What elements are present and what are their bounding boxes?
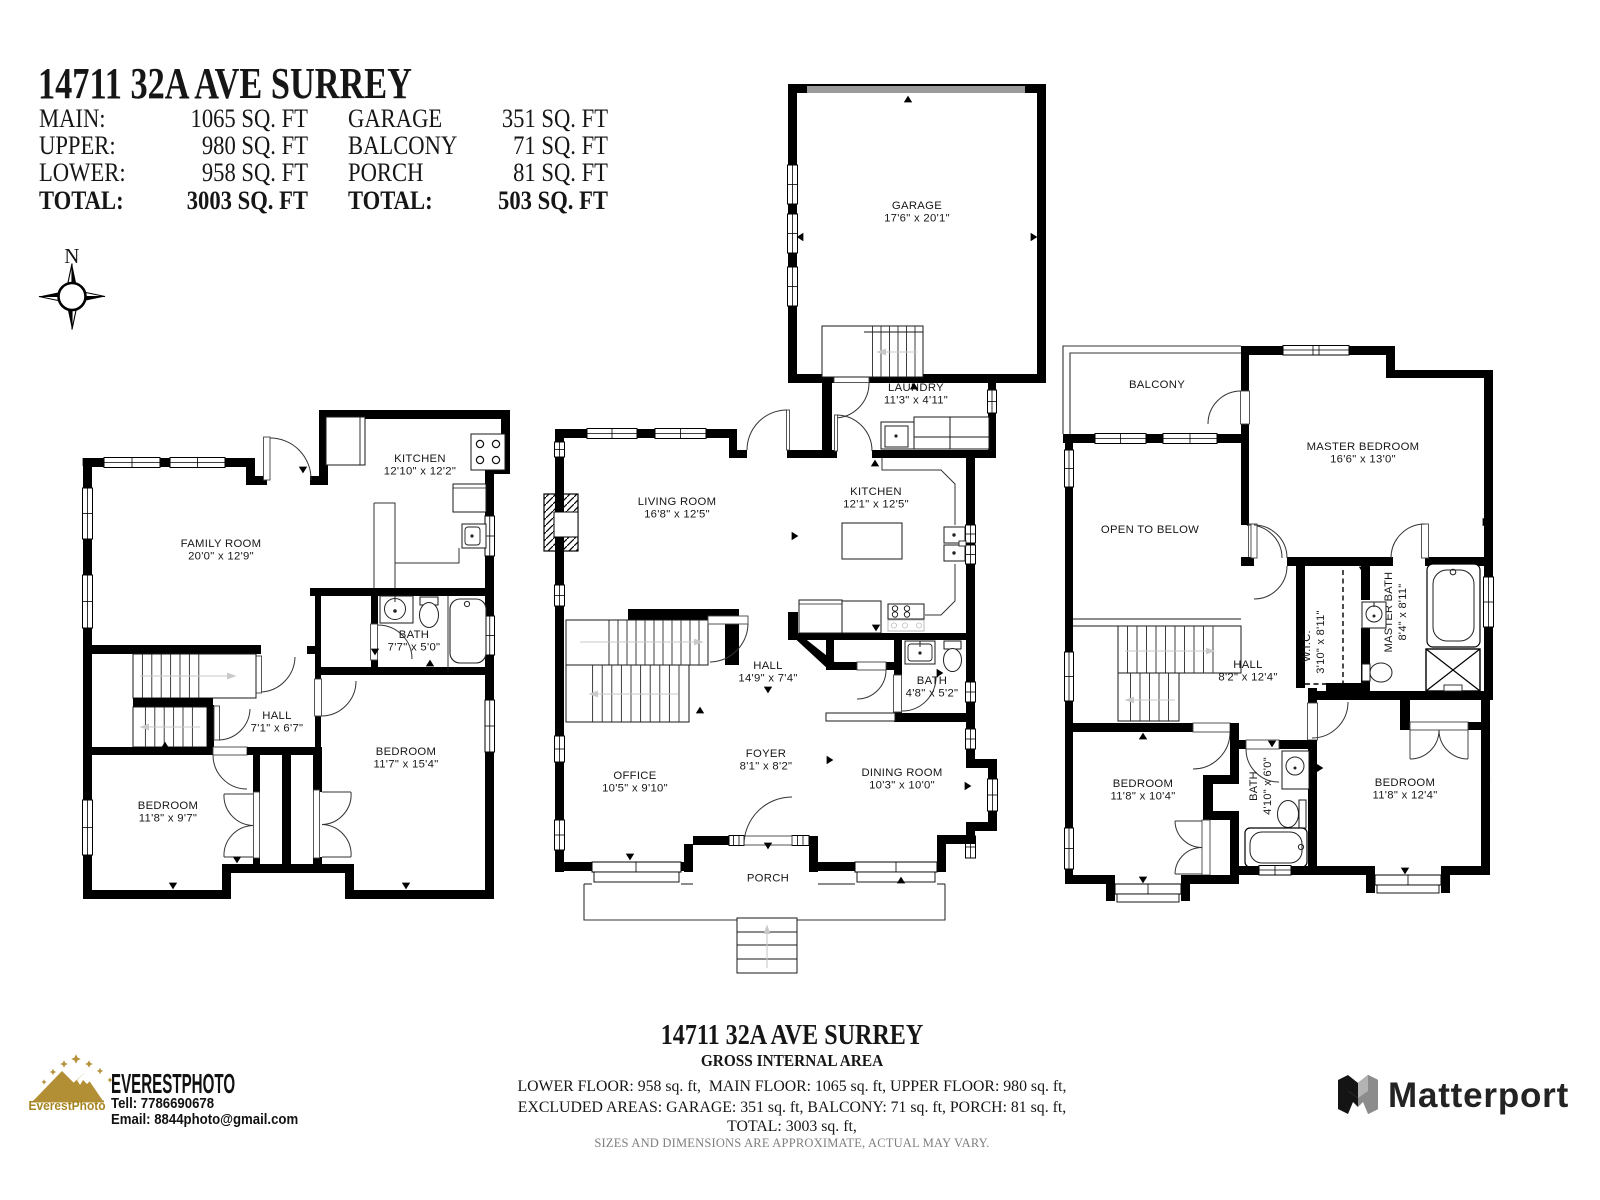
svg-text:8'4" x 8'11": 8'4" x 8'11"	[1397, 584, 1409, 641]
svg-text:11'8" x 12'4": 11'8" x 12'4"	[1372, 789, 1437, 801]
svg-text:16'8" x 12'5": 16'8" x 12'5"	[644, 508, 710, 520]
svg-text:7'1" x 6'7": 7'1" x 6'7"	[251, 722, 304, 734]
svg-text:14711 32A AVE SURREY: 14711 32A AVE SURREY	[661, 1019, 924, 1050]
svg-text:EXCLUDED AREAS: GARAGE: 351 sq: EXCLUDED AREAS: GARAGE: 351 sq. ft, BALC…	[518, 1099, 1066, 1116]
svg-text:GARAGE: GARAGE	[892, 200, 942, 212]
svg-text:71 SQ. FT: 71 SQ. FT	[513, 132, 608, 161]
svg-text:BEDROOM: BEDROOM	[376, 746, 436, 758]
svg-text:FOYER: FOYER	[746, 748, 786, 760]
svg-text:4'10" x 6'0": 4'10" x 6'0"	[1262, 757, 1274, 815]
svg-text:LIVING ROOM: LIVING ROOM	[638, 496, 717, 508]
svg-text:BATH: BATH	[399, 629, 430, 641]
svg-text:BALCONY: BALCONY	[348, 132, 457, 161]
svg-text:16'6" x 13'0": 16'6" x 13'0"	[1330, 453, 1396, 465]
svg-text:BALCONY: BALCONY	[1129, 379, 1185, 391]
svg-text:10'5" x 9'10": 10'5" x 9'10"	[602, 782, 668, 794]
svg-text:958 SQ. FT: 958 SQ. FT	[202, 159, 308, 188]
svg-text:TOTAL:: TOTAL:	[39, 187, 124, 216]
svg-text:11'8" x 10'4": 11'8" x 10'4"	[1110, 790, 1175, 802]
svg-text:503 SQ. FT: 503 SQ. FT	[498, 187, 608, 216]
svg-text:KITCHEN: KITCHEN	[850, 486, 902, 498]
svg-text:BEDROOM: BEDROOM	[138, 800, 198, 812]
svg-text:BEDROOM: BEDROOM	[1375, 777, 1435, 789]
svg-text:Email: 8844photo@gmail.com: Email: 8844photo@gmail.com	[111, 1110, 298, 1127]
svg-text:TOTAL: 3003 sq. ft,: TOTAL: 3003 sq. ft,	[727, 1118, 857, 1135]
svg-text:HALL: HALL	[262, 710, 291, 722]
svg-text:8'1" x 8'2": 8'1" x 8'2"	[740, 760, 793, 772]
svg-text:W.I.C.: W.I.C.	[1301, 630, 1313, 662]
svg-text:8'2" x 12'4": 8'2" x 12'4"	[1218, 671, 1277, 683]
svg-text:17'6" x 20'1": 17'6" x 20'1"	[884, 212, 950, 224]
svg-text:MAIN:: MAIN:	[39, 105, 106, 134]
svg-text:HALL: HALL	[753, 660, 782, 672]
svg-text:SIZES AND DIMENSIONS ARE APPRO: SIZES AND DIMENSIONS ARE APPROXIMATE, AC…	[594, 1136, 989, 1150]
svg-text:GROSS INTERNAL AREA: GROSS INTERNAL AREA	[701, 1053, 884, 1071]
svg-text:OFFICE: OFFICE	[613, 770, 656, 782]
svg-text:TOTAL:: TOTAL:	[348, 187, 433, 216]
svg-text:12'10" x 12'2": 12'10" x 12'2"	[384, 465, 456, 477]
svg-text:4'8" x 5'2": 4'8" x 5'2"	[906, 687, 959, 699]
svg-text:FAMILY ROOM: FAMILY ROOM	[181, 538, 262, 550]
svg-text:EverestPhoto: EverestPhoto	[28, 1099, 105, 1114]
svg-text:7'7" x 5'0": 7'7" x 5'0"	[388, 641, 441, 653]
svg-text:14711 32A AVE SURREY: 14711 32A AVE SURREY	[38, 59, 412, 108]
svg-text:3'10" x 8'11": 3'10" x 8'11"	[1315, 610, 1327, 673]
svg-text:DINING ROOM: DINING ROOM	[861, 767, 942, 779]
svg-text:Matterport: Matterport	[1388, 1076, 1569, 1115]
svg-text:BATH: BATH	[1248, 771, 1260, 801]
svg-text:Tell: 7786690678: Tell: 7786690678	[111, 1094, 214, 1111]
svg-text:351 SQ. FT: 351 SQ. FT	[502, 105, 608, 134]
svg-text:LOWER FLOOR: 958 sq. ft, MAIN: LOWER FLOOR: 958 sq. ft, MAIN FLOOR: 106…	[518, 1078, 1067, 1095]
svg-text:3003 SQ. FT: 3003 SQ. FT	[187, 187, 308, 216]
svg-text:GARAGE: GARAGE	[348, 105, 442, 134]
svg-text:PORCH: PORCH	[747, 873, 789, 885]
svg-text:81 SQ. FT: 81 SQ. FT	[513, 159, 608, 188]
svg-text:UPPER:: UPPER:	[39, 132, 116, 161]
svg-text:BEDROOM: BEDROOM	[1113, 778, 1173, 790]
svg-text:11'8" x 9'7": 11'8" x 9'7"	[139, 812, 197, 824]
svg-text:14'9" x 7'4": 14'9" x 7'4"	[738, 672, 797, 684]
svg-text:OPEN TO BELOW: OPEN TO BELOW	[1101, 524, 1199, 536]
svg-text:11'3" x 4'11": 11'3" x 4'11"	[884, 394, 948, 406]
svg-text:1065 SQ. FT: 1065 SQ. FT	[191, 105, 309, 134]
svg-text:KITCHEN: KITCHEN	[394, 453, 446, 465]
svg-text:MASTER BEDROOM: MASTER BEDROOM	[1307, 441, 1420, 453]
svg-text:PORCH: PORCH	[348, 159, 423, 188]
svg-text:980 SQ. FT: 980 SQ. FT	[202, 132, 308, 161]
svg-text:11'7" x 15'4": 11'7" x 15'4"	[373, 758, 438, 770]
svg-text:BATH: BATH	[917, 675, 948, 687]
svg-text:LOWER:: LOWER:	[39, 159, 126, 188]
svg-text:12'1" x 12'5": 12'1" x 12'5"	[843, 498, 909, 510]
svg-text:10'3" x 10'0": 10'3" x 10'0"	[869, 779, 935, 791]
svg-text:20'0" x 12'9": 20'0" x 12'9"	[188, 550, 254, 562]
svg-text:HALL: HALL	[1233, 659, 1262, 671]
